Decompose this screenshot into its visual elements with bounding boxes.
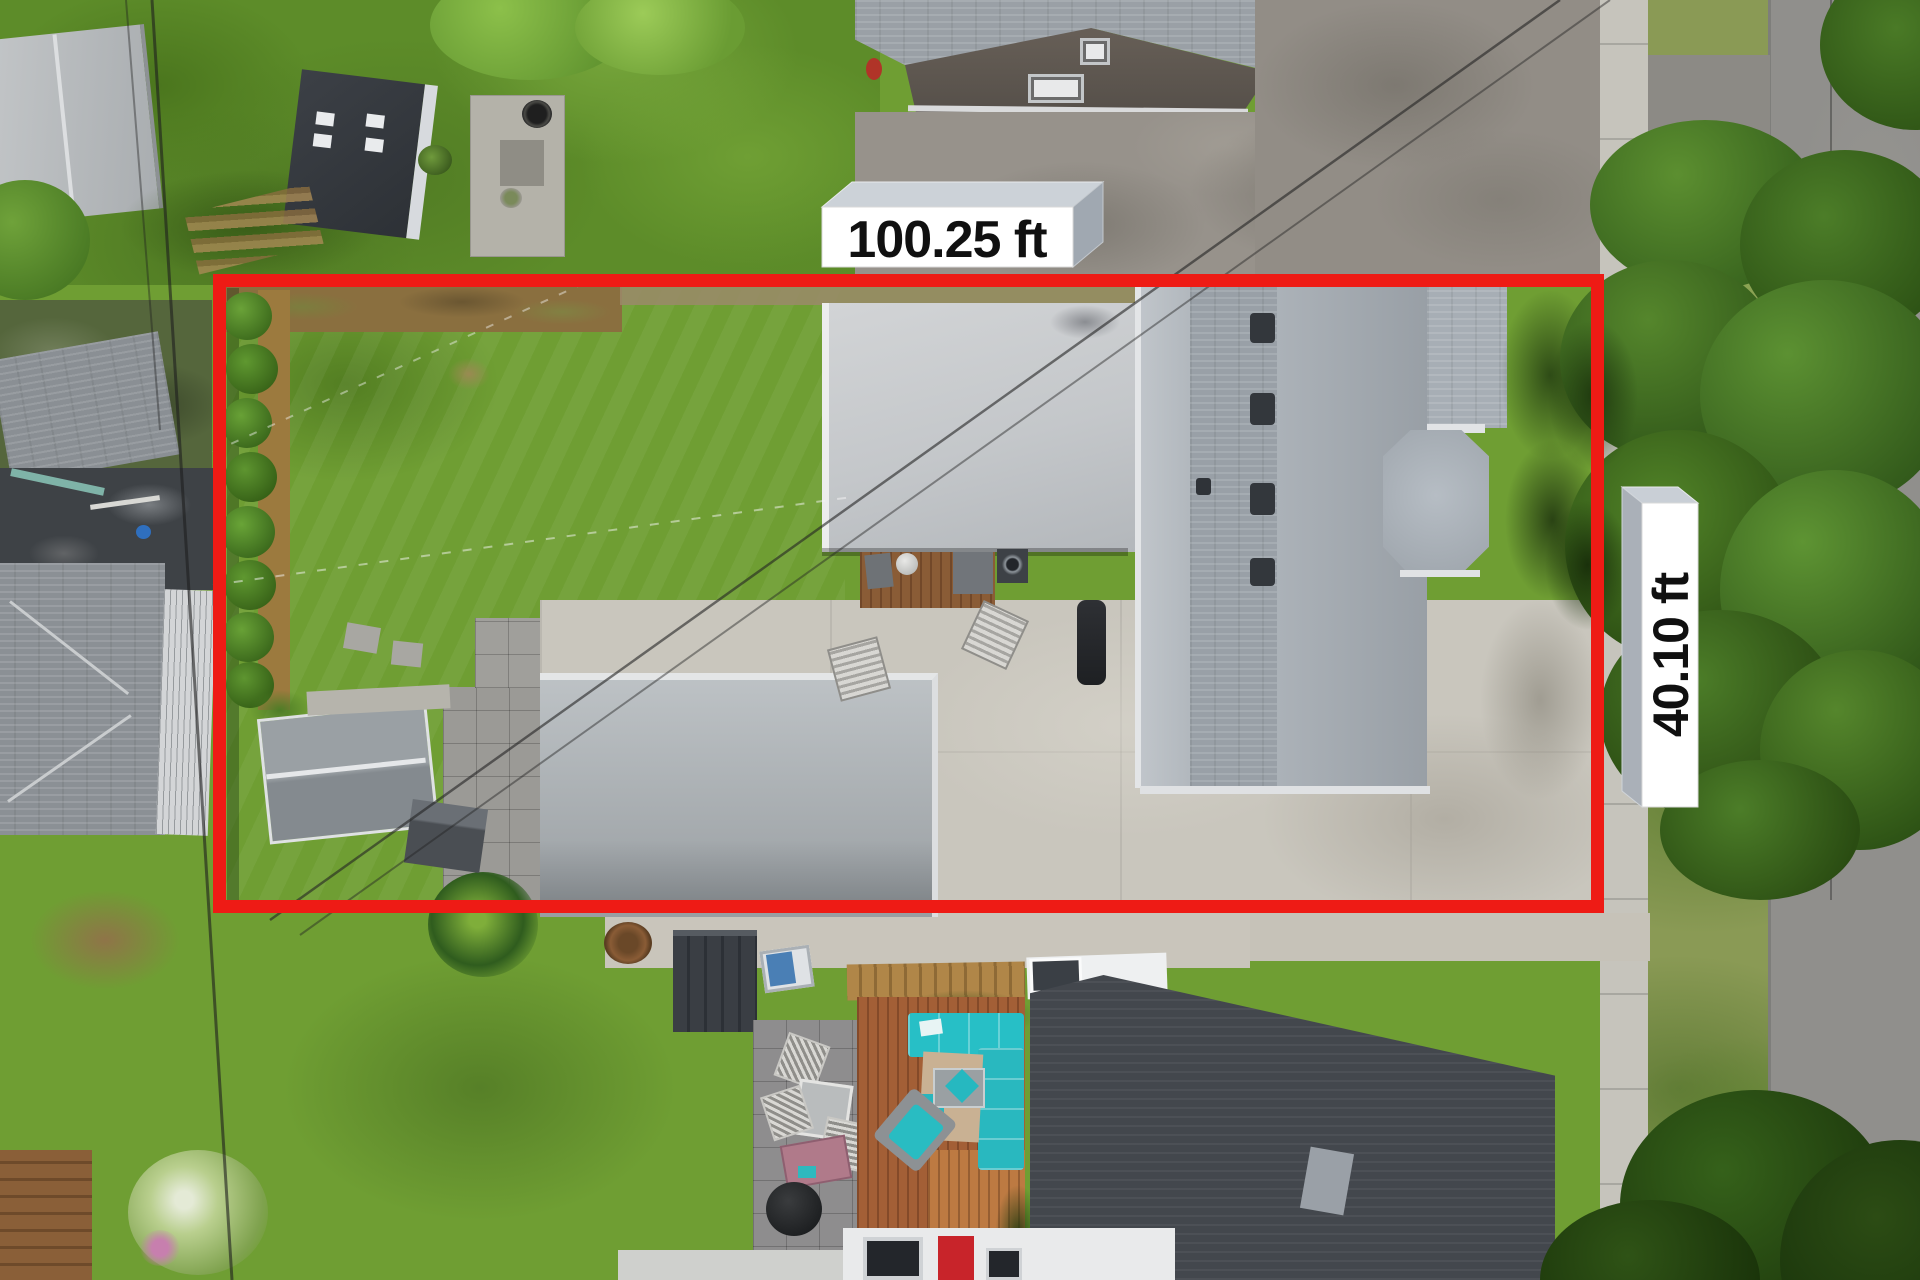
depth-label-text: 40.10 ft bbox=[1643, 572, 1699, 738]
power-line-main bbox=[270, 0, 1560, 920]
property-boundary bbox=[220, 281, 1598, 907]
depth-dimension-label: 40.10 ft bbox=[1622, 487, 1699, 807]
survey-line-white bbox=[213, 276, 600, 452]
width-label-top-face bbox=[822, 182, 1103, 207]
annotation-overlay: 100.25 ft 40.10 ft bbox=[0, 0, 1920, 1280]
power-line-secondary bbox=[300, 0, 1610, 935]
aerial-photo: 100.25 ft 40.10 ft bbox=[0, 0, 1920, 1280]
width-label-text: 100.25 ft bbox=[847, 211, 1047, 269]
depth-label-side-face bbox=[1622, 487, 1642, 807]
width-dimension-label: 100.25 ft bbox=[822, 182, 1103, 269]
